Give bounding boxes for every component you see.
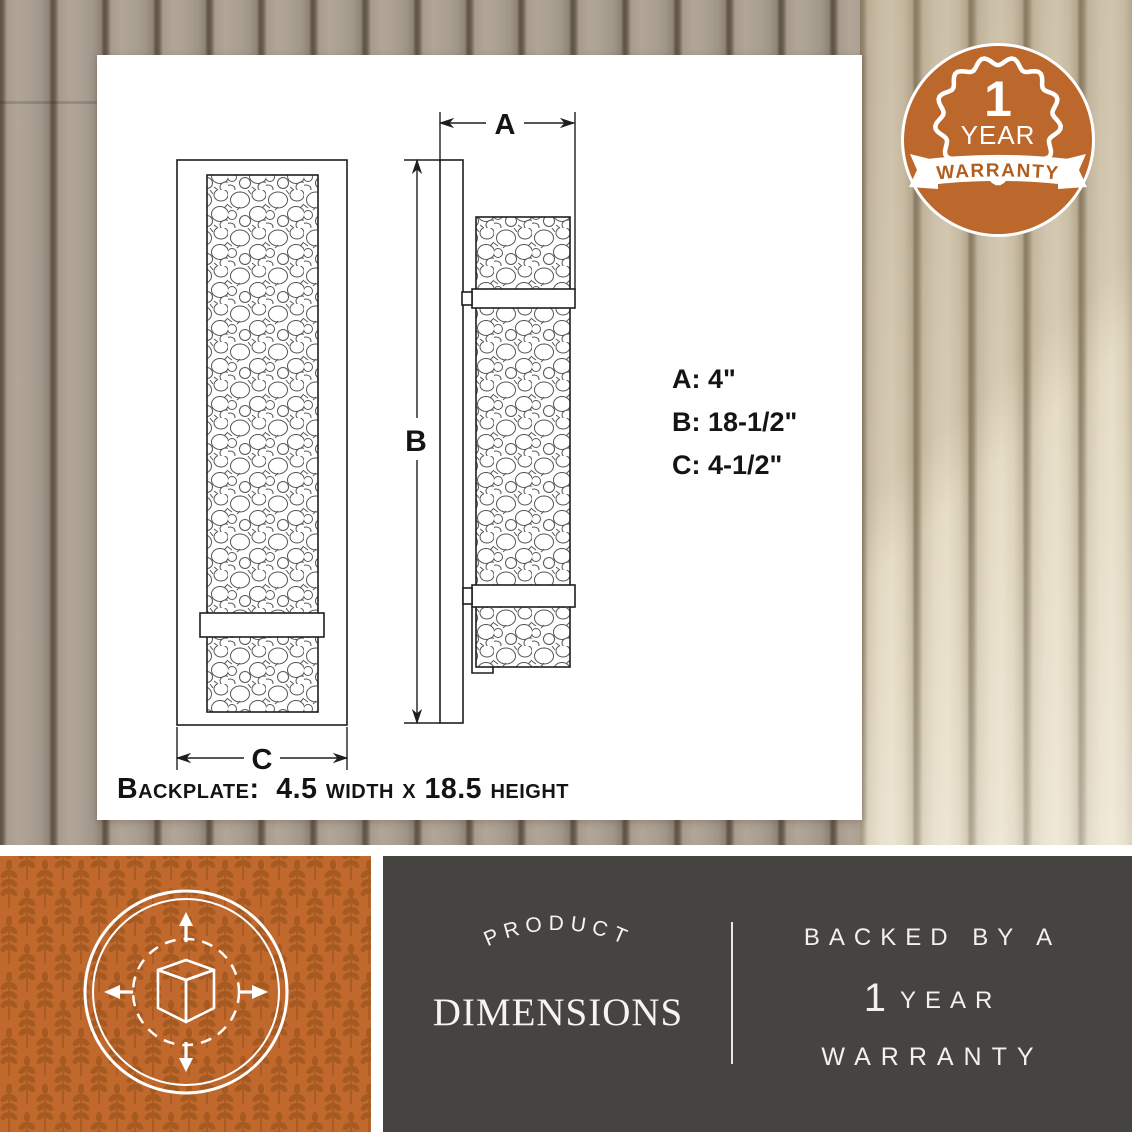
- product-label: PRODUCT: [480, 912, 635, 951]
- side-bottom-bracket-tab: [463, 588, 472, 604]
- warranty-text-block: BACKED BY A 1YEAR WARRANTY: [733, 856, 1132, 1132]
- front-view: [177, 160, 347, 725]
- warranty-badge: 1 YEAR WARRANTY: [900, 42, 1096, 238]
- dim-label-c: C: [252, 744, 273, 776]
- side-backplate-outline: [440, 160, 463, 723]
- spec-a: A: 4": [672, 358, 797, 401]
- side-view: [440, 160, 575, 723]
- footer-text-block: PRODUCT DIMENSIONS BACKED BY A 1YEAR WAR…: [383, 856, 1132, 1132]
- warranty-number: 1: [864, 976, 886, 1020]
- side-bottom-bracket: [472, 585, 575, 607]
- dimension-spec-list: A: 4" B: 18-1/2" C: 4-1/2": [672, 358, 797, 487]
- product-dimensions-icon-block: [0, 856, 371, 1132]
- product-dimensions-infographic: A B C A: 4" B: 18-1/2" C: 4-1/2" Backpla…: [0, 0, 1132, 1132]
- spec-b: B: 18-1/2": [672, 401, 797, 444]
- one-year-line: 1YEAR: [733, 976, 1132, 1021]
- spec-c: C: 4-1/2": [672, 444, 797, 487]
- dim-label-b: B: [405, 425, 427, 458]
- dim-label-a: A: [495, 109, 516, 141]
- warranty-word-line: WARRANTY: [733, 1043, 1132, 1072]
- backplate-note: Backplate: 4.5 width x 18.5 height: [117, 773, 569, 806]
- side-top-bracket-tab: [462, 292, 472, 305]
- backed-by-line: BACKED BY A: [733, 924, 1132, 952]
- warranty-year-word: YEAR: [900, 987, 1001, 1014]
- badge-number: 1: [984, 71, 1012, 127]
- svg-text:PRODUCT: PRODUCT: [480, 912, 635, 951]
- badge-year-label: YEAR: [961, 120, 1036, 150]
- wood-board-seam: [0, 101, 97, 104]
- side-top-bracket: [472, 289, 575, 308]
- dimension-drawing-panel: A B C A: 4" B: 18-1/2" C: 4-1/2" Backpla…: [97, 55, 862, 820]
- front-bracket-band: [200, 613, 324, 637]
- dimensions-cube-icon: [85, 891, 287, 1093]
- dimensions-title: DIMENSIONS: [383, 990, 733, 1035]
- product-dimensions-heading: PRODUCT DIMENSIONS: [383, 856, 733, 1132]
